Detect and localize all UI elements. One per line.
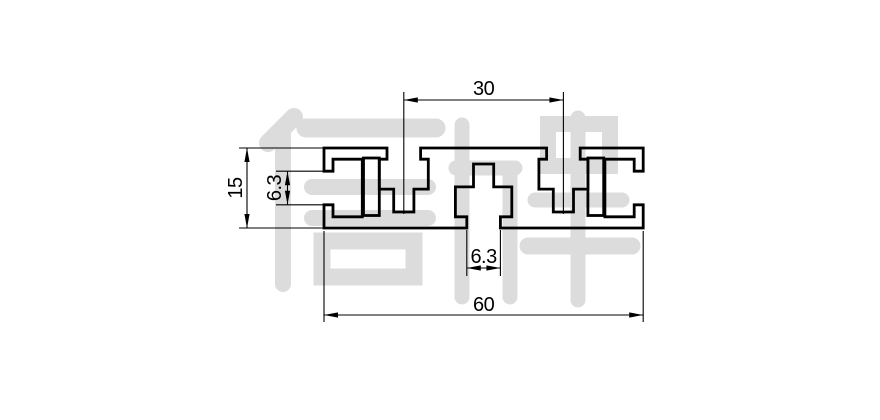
dim-label-top-slot-pitch: 30 <box>473 78 495 100</box>
arrowhead <box>244 214 249 228</box>
arrowhead <box>324 312 338 317</box>
inner-cavity-left <box>364 158 380 216</box>
dim-side-slot-opening: 6.3 <box>264 171 333 205</box>
arrowhead <box>404 97 418 102</box>
drawing-canvas: 30 15 6.3 6.3 <box>0 0 880 420</box>
arrowhead <box>629 312 643 317</box>
arrowhead <box>549 97 563 102</box>
dim-bottom-slot-opening: 6.3 <box>467 230 501 276</box>
profile-drawing: 30 15 6.3 6.3 <box>0 0 880 420</box>
dim-profile-width: 60 <box>324 231 643 322</box>
dim-label-profile-height: 15 <box>225 177 247 199</box>
dim-label-bottom-slot-opening: 6.3 <box>470 246 497 268</box>
dim-top-slot-pitch: 30 <box>404 78 564 214</box>
dim-label-side-slot-opening: 6.3 <box>264 174 286 201</box>
dim-label-profile-width: 60 <box>473 294 495 316</box>
arrowhead <box>244 148 249 162</box>
inner-cavity-right <box>588 158 604 216</box>
